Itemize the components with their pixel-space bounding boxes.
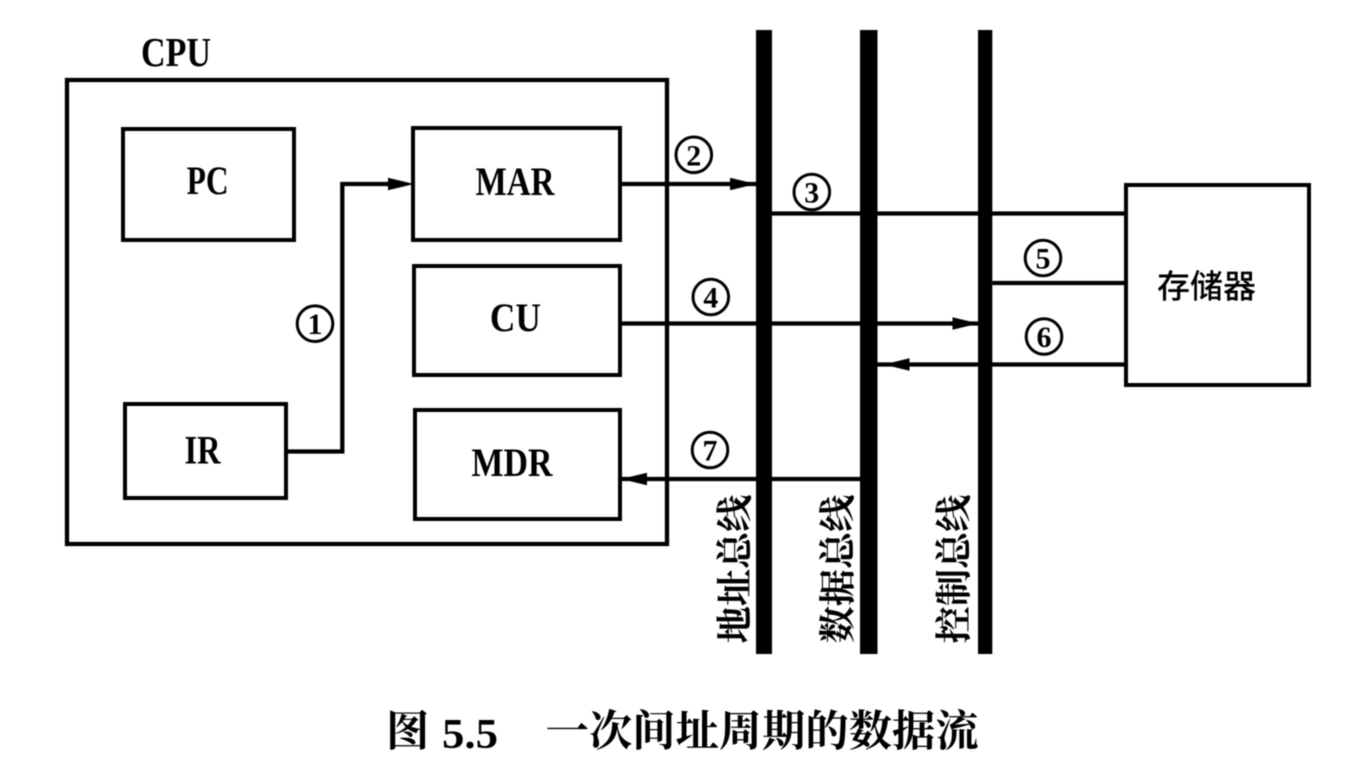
svg-text:5.5: 5.5: [442, 712, 498, 758]
svg-text:1: 1: [308, 308, 323, 341]
svg-text:4: 4: [703, 282, 718, 315]
svg-text:3: 3: [804, 177, 819, 210]
svg-text:5: 5: [1036, 243, 1051, 276]
svg-text:MAR: MAR: [476, 159, 556, 204]
svg-text:6: 6: [1037, 321, 1052, 354]
svg-text:CPU: CPU: [141, 29, 211, 75]
svg-text:7: 7: [703, 435, 718, 468]
svg-text:IR: IR: [185, 428, 222, 473]
svg-text:MDR: MDR: [472, 440, 554, 485]
svg-text:CU: CU: [490, 295, 541, 340]
svg-text:PC: PC: [187, 158, 229, 203]
svg-text:2: 2: [686, 139, 701, 172]
